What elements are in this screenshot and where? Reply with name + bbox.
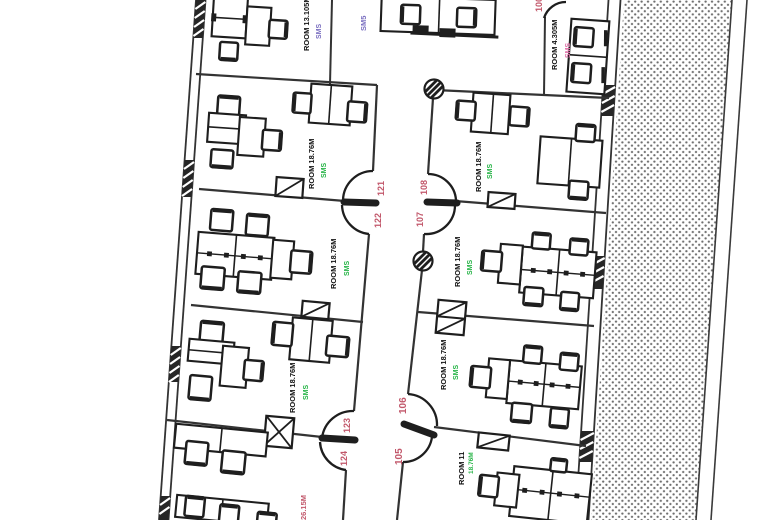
- svg-text:ROOM 18.76M: ROOM 18.76M: [329, 239, 338, 289]
- svg-text:SMS: SMS: [565, 43, 572, 59]
- svg-text:106: 106: [398, 397, 409, 414]
- svg-text:ROOM 4.305M: ROOM 4.305M: [550, 20, 559, 70]
- svg-text:SMS: SMS: [487, 164, 494, 180]
- svg-text:ROOM 18.76M: ROOM 18.76M: [439, 340, 448, 390]
- svg-text:SMS: SMS: [467, 260, 474, 276]
- svg-text:105: 105: [394, 448, 405, 465]
- svg-text:SMS: SMS: [453, 365, 460, 381]
- svg-text:ROOM 13.105M: ROOM 13.105M: [302, 0, 311, 51]
- svg-text:SMS: SMS: [344, 261, 351, 277]
- svg-text:107: 107: [415, 212, 425, 227]
- svg-text:108: 108: [419, 180, 429, 195]
- svg-text:ROOM 18.76M: ROOM 18.76M: [288, 363, 297, 413]
- svg-text:122: 122: [373, 213, 383, 228]
- svg-text:SMS: SMS: [321, 163, 328, 179]
- svg-text:124: 124: [339, 451, 349, 466]
- svg-text:ROOM 18.76M: ROOM 18.76M: [453, 237, 462, 287]
- svg-text:26.15M: 26.15M: [299, 495, 308, 520]
- svg-text:SMS: SMS: [303, 385, 310, 401]
- svg-text:123: 123: [342, 418, 352, 433]
- svg-text:121: 121: [376, 181, 386, 196]
- svg-text:SMS: SMS: [316, 24, 323, 40]
- svg-text:ROOM 18.76M: ROOM 18.76M: [474, 142, 483, 192]
- svg-text:ROOM 18.76M: ROOM 18.76M: [307, 139, 316, 189]
- svg-text:18.76M: 18.76M: [468, 452, 475, 474]
- svg-text:100: 100: [534, 0, 544, 12]
- svg-text:ROOM 11: ROOM 11: [457, 452, 466, 485]
- svg-text:SM5: SM5: [359, 16, 368, 31]
